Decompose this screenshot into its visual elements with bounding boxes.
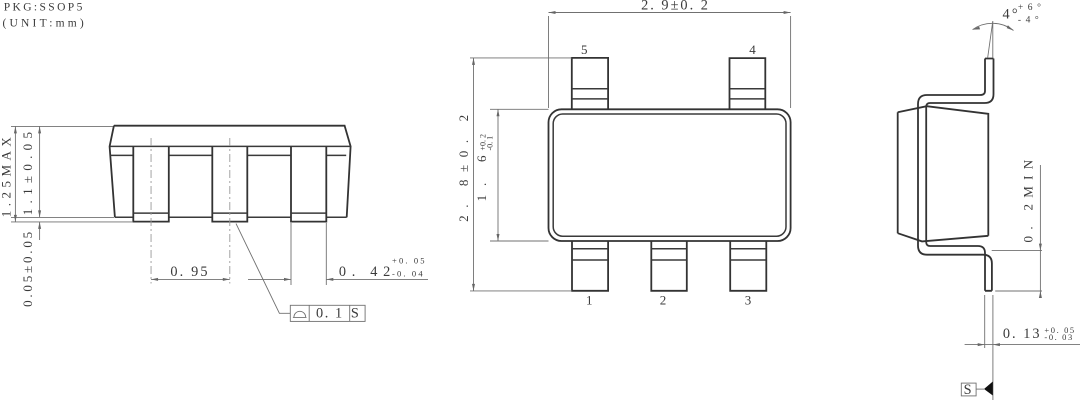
- svg-text:4: 4: [749, 42, 756, 57]
- svg-text:1.1±0.05: 1.1±0.05: [20, 127, 35, 216]
- svg-text:0. 13: 0. 13: [1003, 326, 1042, 342]
- svg-text:PKG:SSOP5: PKG:SSOP5: [4, 2, 85, 14]
- svg-text:3: 3: [745, 292, 752, 307]
- svg-text:0. 42: 0. 42: [339, 264, 396, 280]
- svg-text:-0. 03: -0. 03: [1044, 332, 1073, 342]
- svg-text:1.25MAX: 1.25MAX: [0, 133, 14, 218]
- svg-text:1. 6: 1. 6: [474, 147, 489, 202]
- svg-text:0. 1: 0. 1: [316, 306, 344, 322]
- svg-text:-4°: -4°: [1018, 14, 1043, 25]
- svg-text:0. 95: 0. 95: [170, 264, 209, 280]
- svg-text:2. 9±0. 2: 2. 9±0. 2: [641, 0, 710, 14]
- svg-text:+0. 05: +0. 05: [392, 255, 427, 265]
- svg-text:0. 2MIN: 0. 2MIN: [1021, 154, 1036, 243]
- svg-text:-0. 1: -0. 1: [486, 136, 495, 151]
- svg-text:+6°: +6°: [1018, 2, 1046, 13]
- svg-text:(UNIT:mm): (UNIT:mm): [3, 18, 87, 30]
- svg-text:S: S: [964, 382, 974, 398]
- svg-text:S: S: [351, 306, 361, 322]
- svg-text:2: 2: [660, 292, 667, 307]
- svg-text:5: 5: [581, 42, 588, 57]
- svg-text:-0. 04: -0. 04: [392, 268, 425, 278]
- svg-text:2. 8±0. 2: 2. 8±0. 2: [456, 107, 471, 222]
- svg-text:1: 1: [586, 292, 593, 307]
- svg-text:0.05±0.05: 0.05±0.05: [20, 229, 35, 307]
